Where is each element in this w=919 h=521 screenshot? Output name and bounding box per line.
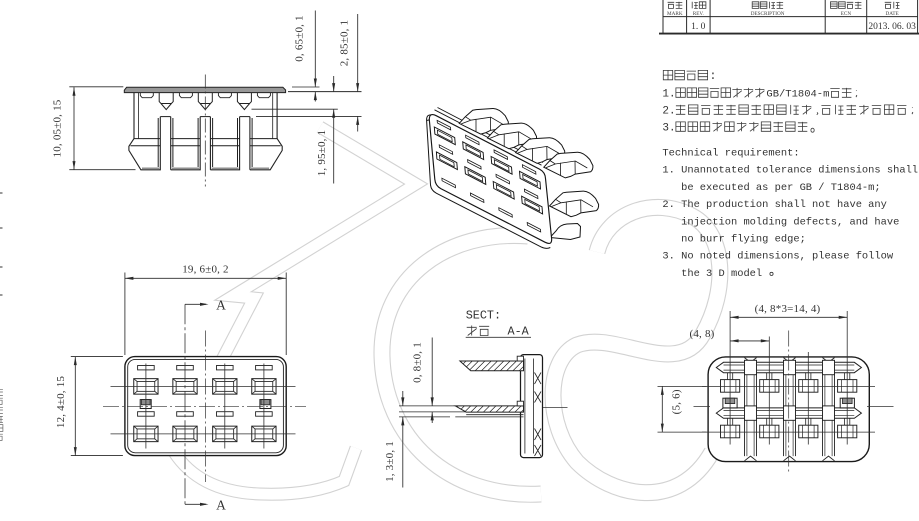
svg-text:DESCRIPTION: DESCRIPTION xyxy=(751,11,785,17)
svg-text:no burr flying edge;: no burr flying edge; xyxy=(662,234,805,246)
svg-text:(4, 8): (4, 8) xyxy=(689,328,714,340)
svg-text:be executed as per GB / T1804-: be executed as per GB / T1804-m; xyxy=(662,182,880,194)
svg-text:A-A: A-A xyxy=(508,325,530,339)
svg-text:(4, 8*3=14, 4): (4, 8*3=14, 4) xyxy=(755,303,821,315)
svg-text:A: A xyxy=(216,498,226,513)
svg-text:0, 8±0, 1: 0, 8±0, 1 xyxy=(412,342,424,383)
svg-text:1, 3±0, 1: 1, 3±0, 1 xyxy=(384,441,396,482)
svg-text:ECN: ECN xyxy=(841,11,852,17)
svg-text:3.: 3. xyxy=(662,123,675,135)
svg-text:Technical requirement:: Technical requirement: xyxy=(662,148,799,160)
svg-text::: : xyxy=(710,70,717,83)
svg-text:0, 65±0, 1: 0, 65±0, 1 xyxy=(294,15,306,62)
svg-text:1. Unannotated tolerance dimen: 1. Unannotated tolerance dimensions shal… xyxy=(662,165,918,177)
svg-text:2. The production shall not ha: 2. The production shall not have any xyxy=(662,199,886,211)
svg-text:MARK: MARK xyxy=(667,11,683,17)
svg-text:the 3 D model: the 3 D model xyxy=(662,268,762,280)
svg-text:2.: 2. xyxy=(662,106,675,118)
svg-text:1.: 1. xyxy=(662,89,675,101)
svg-text:injection molding defects, and: injection molding defects, and have xyxy=(662,216,899,228)
svg-text:2013. 06. 03: 2013. 06. 03 xyxy=(868,22,916,32)
svg-text:REV.: REV. xyxy=(693,11,704,17)
svg-text:(5, 6): (5, 6) xyxy=(671,389,683,414)
svg-text:A: A xyxy=(216,298,226,313)
svg-text:DATE: DATE xyxy=(885,11,898,17)
svg-text:2, 85±0, 1: 2, 85±0, 1 xyxy=(339,20,351,67)
svg-text:1, 95±0, 1: 1, 95±0, 1 xyxy=(316,130,328,177)
svg-text:1. 0: 1. 0 xyxy=(691,22,706,32)
svg-text:10, 05±0, 15: 10, 05±0, 15 xyxy=(52,99,64,157)
svg-text:12, 4±0, 15: 12, 4±0, 15 xyxy=(55,376,67,429)
svg-text:19, 6±0, 2: 19, 6±0, 2 xyxy=(182,264,229,276)
svg-text:GB/T1804-m: GB/T1804-m xyxy=(766,89,829,101)
svg-text:SECT:: SECT: xyxy=(466,309,501,323)
svg-text:3. No noted dimensions, please: 3. No noted dimensions, please follow xyxy=(662,251,893,263)
